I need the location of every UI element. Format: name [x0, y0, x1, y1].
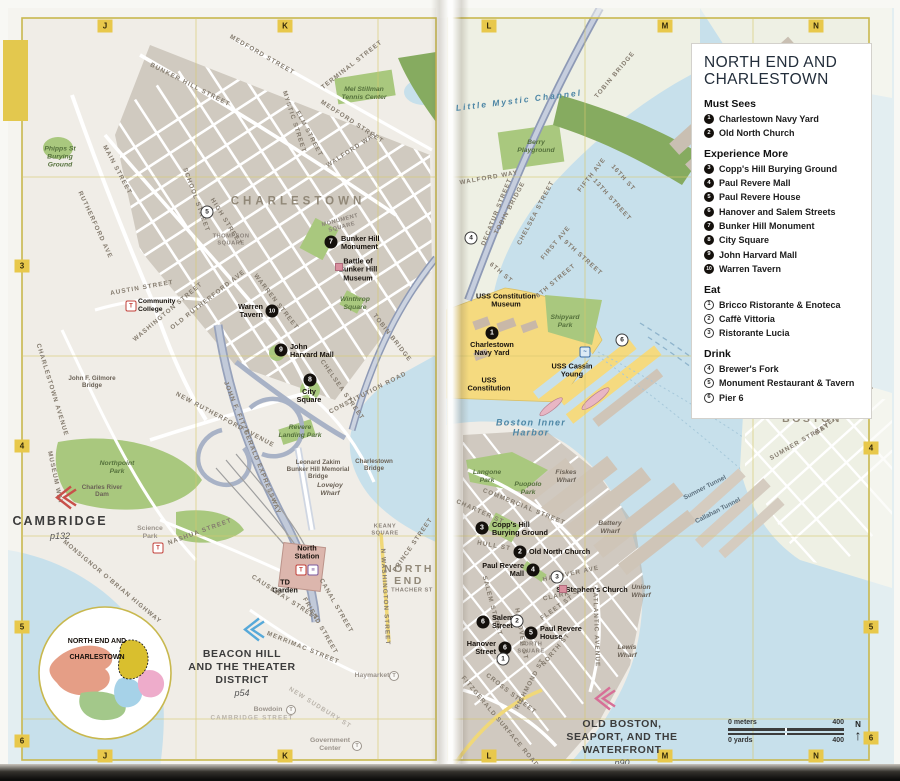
cross-ref-name: BEACON HILL AND THE THEATER DISTRICT	[188, 648, 295, 687]
legend-item-label: Old North Church	[719, 128, 795, 139]
legend-section-heading-experience-more: Experience More	[704, 148, 859, 160]
sight-marker-icon: 1	[704, 114, 714, 124]
sight-marker-icon: 9	[704, 250, 714, 260]
legend-item-paul-revere-mall: 4Paul Revere Mall	[704, 178, 859, 189]
cross-ref-arrow-icon	[239, 617, 265, 648]
legend-item-label: John Harvard Mall	[719, 250, 797, 261]
cross-ref-beacon-hill: BEACON HILL AND THE THEATER DISTRICTp54	[188, 648, 295, 698]
legend-section-heading-drink: Drink	[704, 348, 859, 360]
legend-section-heading-must-sees: Must Sees	[704, 98, 859, 110]
sight-marker-icon: 5	[704, 192, 714, 202]
legend-item-old-north-church: 2Old North Church	[704, 128, 859, 139]
north-arrow: N ↑	[851, 720, 865, 741]
legend-item-label: Caffè Vittoria	[719, 314, 775, 325]
legend-item-label: Monument Restaurant & Tavern	[719, 378, 854, 389]
eatdrink-marker-icon: 1	[704, 300, 714, 310]
legend-item-city-square: 8City Square	[704, 235, 859, 246]
cross-ref-cambridge: CAMBRIDGEp132	[12, 514, 107, 541]
legend-item-copp-s-hill-burying-ground: 3Copp's Hill Burying Ground	[704, 164, 859, 175]
book-map-spread: CHARLESTOWNNORTH ENDEAST BOSTONLittle My…	[0, 0, 900, 781]
eatdrink-marker-icon: 2	[704, 314, 714, 324]
cross-ref-arrow-icon	[51, 485, 77, 516]
scale-yards-zero: 0 yards	[728, 737, 753, 744]
legend-item-pier-6: 6Pier 6	[704, 393, 859, 404]
legend-item-label: Bunker Hill Monument	[719, 221, 815, 232]
legend-item-label: Charlestown Navy Yard	[719, 114, 819, 125]
legend-item-ristorante-lucia: 3Ristorante Lucia	[704, 328, 859, 339]
legend-item-label: City Square	[719, 235, 769, 246]
cross-ref-old-boston-: OLD BOSTON, SEAPORT, AND THE WATERFRONTp…	[566, 718, 677, 768]
cross-ref-page: p132	[12, 531, 107, 541]
scale-bar: 0 meters 400 0 yards 400	[728, 719, 844, 744]
cross-ref-name: CAMBRIDGE	[12, 514, 107, 530]
legend-item-charlestown-navy-yard: 1Charlestown Navy Yard	[704, 114, 859, 125]
scale-bar-yards	[728, 733, 844, 736]
legend-item-monument-restaurant-tavern: 5Monument Restaurant & Tavern	[704, 378, 859, 389]
legend-title: NORTH END AND CHARLESTOWN	[704, 54, 859, 89]
legend-item-label: Bricco Ristorante & Enoteca	[719, 300, 841, 311]
legend-panel: NORTH END AND CHARLESTOWN Must Sees1Char…	[691, 43, 872, 419]
sight-marker-icon: 10	[704, 264, 714, 274]
legend-item-label: Ristorante Lucia	[719, 328, 790, 339]
eatdrink-marker-icon: 5	[704, 378, 714, 388]
scale-yards-max: 400	[832, 737, 844, 744]
legend-item-warren-tavern: 10Warren Tavern	[704, 264, 859, 275]
legend-section-heading-eat: Eat	[704, 284, 859, 296]
scale-bar-meters	[728, 728, 844, 731]
cross-ref-page: p54	[188, 688, 295, 698]
legend-item-label: Brewer's Fork	[719, 364, 779, 375]
sight-marker-icon: 3	[704, 164, 714, 174]
legend-item-label: Copp's Hill Burying Ground	[719, 164, 837, 175]
legend-item-label: Paul Revere Mall	[719, 178, 791, 189]
sight-marker-icon: 4	[704, 178, 714, 188]
sight-marker-icon: 7	[704, 221, 714, 231]
legend-item-label: Hanover and Salem Streets	[719, 207, 836, 218]
page-bottom-shadow	[0, 764, 900, 781]
legend-item-bunker-hill-monument: 7Bunker Hill Monument	[704, 221, 859, 232]
eatdrink-marker-icon: 6	[704, 393, 714, 403]
legend-item-john-harvard-mall: 9John Harvard Mall	[704, 250, 859, 261]
sight-marker-icon: 6	[704, 207, 714, 217]
sight-marker-icon: 8	[704, 235, 714, 245]
scale-meters-max: 400	[832, 719, 844, 726]
eatdrink-marker-icon: 4	[704, 364, 714, 374]
legend-item-label: Paul Revere House	[719, 192, 801, 203]
legend-item-hanover-and-salem-streets: 6Hanover and Salem Streets	[704, 207, 859, 218]
legend-item-brewer-s-fork: 4Brewer's Fork	[704, 364, 859, 375]
eatdrink-marker-icon: 3	[704, 328, 714, 338]
legend-item-paul-revere-house: 5Paul Revere House	[704, 192, 859, 203]
cross-ref-name: OLD BOSTON, SEAPORT, AND THE WATERFRONT	[566, 718, 677, 757]
cross-ref-arrow-icon	[590, 686, 616, 717]
legend-item-bricco-ristorante-enoteca: 1Bricco Ristorante & Enoteca	[704, 300, 859, 311]
sight-marker-icon: 2	[704, 128, 714, 138]
legend-item-label: Pier 6	[719, 393, 744, 404]
legend-item-caff-vittoria: 2Caffè Vittoria	[704, 314, 859, 325]
scale-meters-zero: 0 meters	[728, 719, 757, 726]
legend-item-label: Warren Tavern	[719, 264, 781, 275]
